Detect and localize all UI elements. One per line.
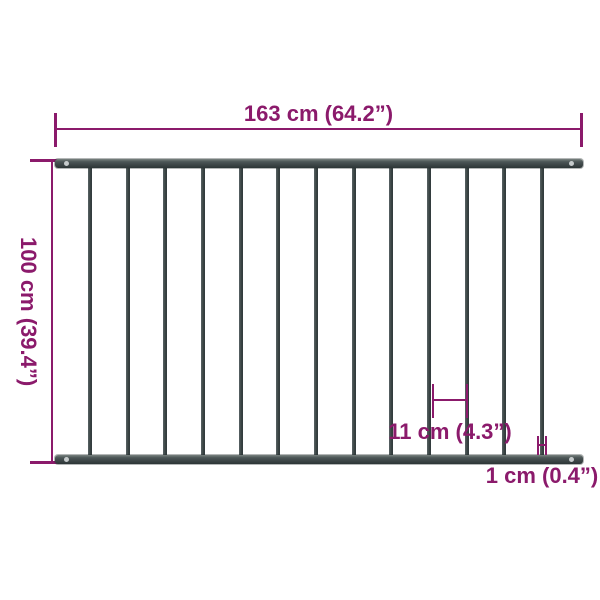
fence-dimension-diagram: 163 cm (64.2”) 100 cm (39.4”) 11 cm (4.3…: [0, 0, 600, 600]
bar-thickness-dimension-label: 1 cm (0.4”): [442, 464, 600, 488]
fence-bar: [88, 166, 92, 457]
gap-dimension-label: 11 cm (4.3”): [350, 420, 550, 444]
screw-icon: [64, 457, 69, 462]
fence-bar: [389, 166, 393, 457]
fence-top-rail: [55, 159, 583, 168]
fence-bar: [276, 166, 280, 457]
gap-dimension-tick-left: [432, 384, 434, 418]
fence-bar: [314, 166, 318, 457]
fence-bar: [352, 166, 356, 457]
fence-bar: [239, 166, 243, 457]
fence-bar: [427, 166, 431, 457]
fence-bar: [126, 166, 130, 457]
fence-bar: [540, 166, 544, 457]
gap-dimension-line: [432, 399, 468, 401]
gap-dimension-tick-right: [466, 384, 468, 418]
fence-bar: [201, 166, 205, 457]
bar-thickness-line: [537, 444, 547, 446]
fence-bar: [502, 166, 506, 457]
screw-icon: [64, 161, 69, 166]
fence-bar: [163, 166, 167, 457]
screw-icon: [569, 161, 574, 166]
fence-bars: [0, 0, 600, 600]
screw-icon: [569, 457, 574, 462]
